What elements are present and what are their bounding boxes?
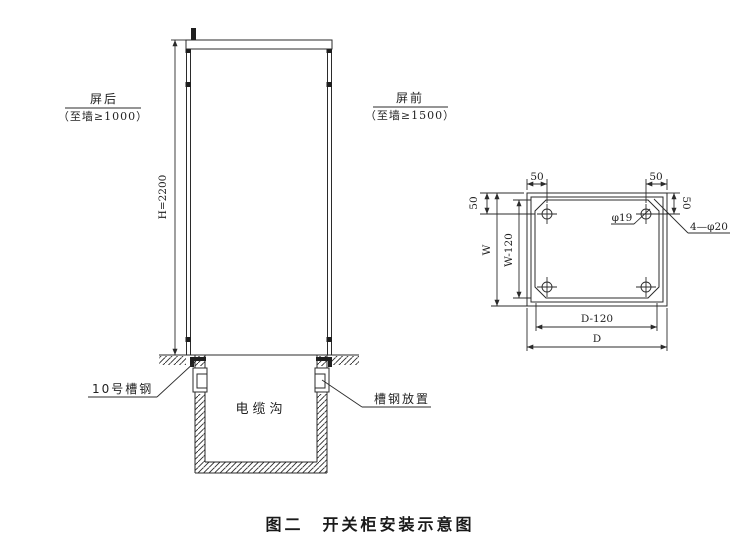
roof-lug (191, 28, 196, 40)
dim-depth-minus-120: D-120 (536, 303, 657, 331)
channel-placement-label: 槽钢放置 (374, 391, 430, 406)
channel-steel-label: 10号槽钢 (92, 382, 153, 396)
dim-top-left-50: 50 (527, 171, 547, 203)
front-label: 屏前 (396, 90, 424, 105)
dim-top-right-50: 50 (646, 171, 667, 203)
cable-trench: 电缆沟 (195, 355, 327, 473)
dim-text: D (593, 333, 601, 345)
technical-drawing-page: H=2200 屏后 （至墙≥1000） 屏前 （至墙≥1500） (0, 0, 749, 558)
channel-placement-callout: 槽钢放置 (322, 380, 431, 407)
rear-clearance-note: 屏后 （至墙≥1000） (58, 92, 148, 123)
anchor-holes (537, 204, 656, 297)
anchor-hole (537, 204, 557, 224)
figure-caption: 图二 开关柜安装示意图 (265, 515, 474, 534)
drawing-canvas: H=2200 屏后 （至墙≥1000） 屏前 （至墙≥1500） (0, 0, 749, 558)
dim-text: 50 (468, 196, 480, 209)
channel-brackets (193, 368, 329, 392)
dim-text: W (481, 244, 493, 255)
rear-label: 屏后 (90, 92, 118, 106)
rear-clearance-text: （至墙≥1000） (58, 109, 148, 123)
elevation-view: H=2200 屏后 （至墙≥1000） 屏前 （至墙≥1500） (58, 28, 455, 473)
dim-text: W-120 (503, 233, 515, 267)
dim-text: 50 (680, 196, 692, 209)
channel-steel-callout: 10号槽钢 (88, 361, 196, 397)
hole-diameter-callout: φ19 (611, 209, 650, 224)
cabinet-outline (186, 28, 333, 355)
height-dim-text: H=2200 (157, 175, 169, 220)
hole-diameter-text: φ19 (612, 212, 633, 224)
height-dimension: H=2200 (157, 40, 186, 355)
cable-trench-label: 电缆沟 (235, 401, 286, 417)
dim-text: 50 (530, 171, 543, 183)
front-clearance-text: （至墙≥1500） (365, 108, 455, 122)
front-clearance-note: 屏前 （至墙≥1500） (365, 90, 455, 122)
anchor-hole (537, 277, 557, 297)
holes-count-text: 4—φ20 (690, 221, 728, 233)
dim-left-50: 50 (468, 193, 535, 214)
dim-text: D-120 (581, 313, 613, 325)
channel-steel-angles (190, 357, 332, 367)
plan-view: 50 50 50 W W-120 (468, 171, 730, 351)
dim-text: 50 (649, 171, 662, 183)
anchor-hole (636, 277, 656, 297)
